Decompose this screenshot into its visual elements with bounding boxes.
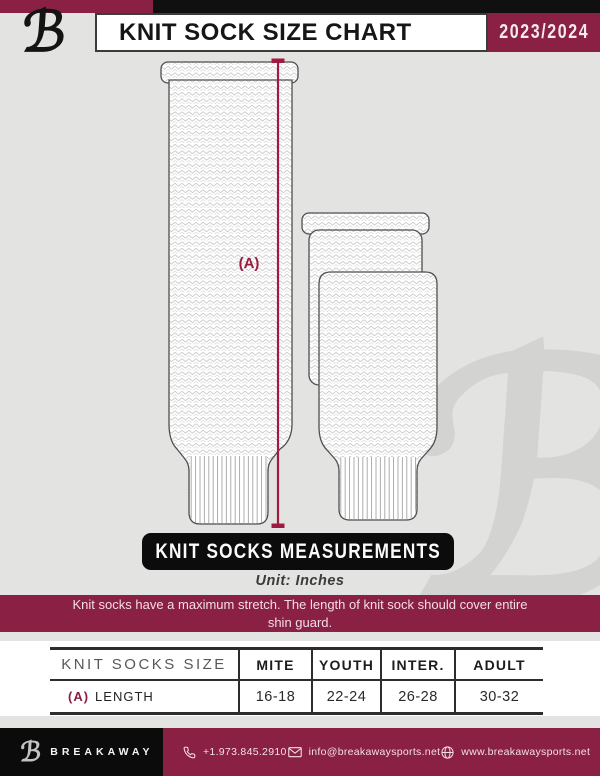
stretch-note-bar: Knit socks have a maximum stretch. The l… xyxy=(0,595,600,632)
breakaway-footer-logo-icon: ℬ xyxy=(19,737,42,768)
table-header-inter: INTER. xyxy=(382,650,456,681)
table-header-adult: ADULT xyxy=(456,650,543,681)
footer-phone-text: +1.973.845.2910 xyxy=(203,746,287,758)
sock-medium xyxy=(302,213,429,385)
sock-small xyxy=(319,272,437,520)
season-badge-label: 2023/2024 xyxy=(499,21,589,44)
unit-label: Unit: Inches xyxy=(0,573,600,589)
row-label-length: LENGTH xyxy=(95,689,154,704)
sock-large xyxy=(161,62,298,524)
table-header-youth: YOUTH xyxy=(313,650,382,681)
measurements-banner: KNIT SOCKS MEASUREMENTS xyxy=(142,533,454,570)
footer-brand-block: ℬ BREAKAWAY xyxy=(0,728,163,776)
page-title: KNIT SOCK SIZE CHART xyxy=(119,19,412,47)
envelope-icon xyxy=(287,745,303,759)
length-inter-value: 26-28 xyxy=(382,681,456,712)
footer-website-text: www.breakawaysports.net xyxy=(461,746,590,758)
length-mite-value: 16-18 xyxy=(240,681,313,712)
measurement-line-a xyxy=(272,59,285,529)
table-row-length-label: (A) LENGTH xyxy=(50,681,240,712)
measurements-banner-label: KNIT SOCKS MEASUREMENTS xyxy=(155,540,441,564)
table-header-size: KNIT SOCKS SIZE xyxy=(50,650,240,681)
footer-email[interactable]: info@breakawaysports.net xyxy=(287,745,441,759)
length-youth-value: 22-24 xyxy=(313,681,382,712)
stretch-note-text: Knit socks have a maximum stretch. The l… xyxy=(61,596,539,631)
top-strip-black xyxy=(153,0,600,13)
phone-icon xyxy=(182,745,197,760)
size-table: KNIT SOCKS SIZE MITE YOUTH INTER. ADULT … xyxy=(50,647,543,715)
page-title-box: KNIT SOCK SIZE CHART xyxy=(95,13,488,52)
footer-brand-name: BREAKAWAY xyxy=(50,746,153,758)
knit-sock-diagram xyxy=(0,0,600,545)
measurement-label-a: (A) xyxy=(231,255,267,272)
footer-website[interactable]: www.breakawaysports.net xyxy=(440,745,590,760)
season-badge: 2023/2024 xyxy=(488,13,600,52)
flyer-page: ℬ KNIT SOCK SIZE CHART 2023/2024 ℬ xyxy=(0,0,600,776)
table-header-mite: MITE xyxy=(240,650,313,681)
footer-contact-bar: +1.973.845.2910 info@breakawaysports.net… xyxy=(163,728,600,776)
breakaway-logo-icon: ℬ xyxy=(20,4,68,60)
footer-email-text: info@breakawaysports.net xyxy=(309,746,441,758)
footer-phone[interactable]: +1.973.845.2910 xyxy=(182,745,287,760)
row-key-a: (A) xyxy=(68,689,89,704)
globe-icon xyxy=(440,745,455,760)
length-adult-value: 30-32 xyxy=(456,681,543,712)
